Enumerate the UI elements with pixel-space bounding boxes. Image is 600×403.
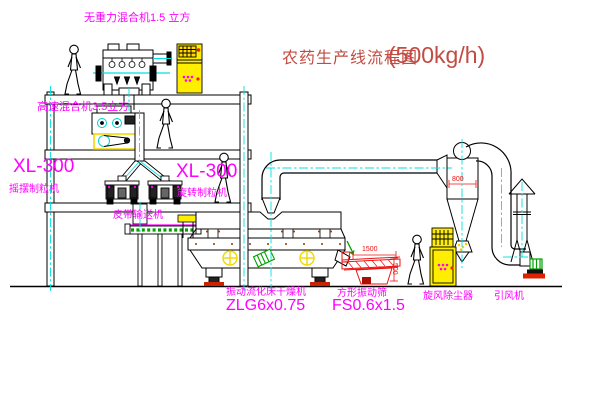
dryer-inlet	[178, 215, 198, 222]
dimension-cyclone-dia: 800	[452, 176, 464, 183]
label-sieve-model: FS0.6x1.5	[332, 298, 405, 314]
granulator-left	[105, 176, 139, 204]
label-dryer-model: ZLG6x0.75	[226, 298, 305, 314]
belt-conveyor	[125, 224, 201, 286]
label-high-speed-mixer: 高速混合机3.5立方	[37, 102, 129, 113]
person-icon	[65, 45, 81, 94]
fan-motor-icon	[530, 259, 542, 269]
induced-draft-fan	[520, 252, 545, 279]
label-granulator-right-name: 旋转制粒机	[177, 189, 227, 199]
label-cyclone: 旋风除尘器	[423, 292, 473, 302]
label-belt-conveyor: 皮带输送机	[113, 211, 163, 221]
label-granulator-right-model: XL-300	[176, 162, 237, 181]
dryer-feet	[204, 268, 330, 286]
flow-arrow-icon	[347, 241, 352, 251]
drawing-title-capacity: (500kg/h)	[388, 44, 485, 67]
label-fan: 引风机	[494, 292, 524, 302]
person-icon	[157, 99, 173, 148]
control-cabinet-top	[177, 44, 202, 93]
cad-drawing-canvas: 无重力混合机1.5 立方 农药生产线流程图 (500kg/h) 高速混合机3.5…	[0, 0, 600, 403]
person-icon	[408, 235, 424, 284]
control-cabinet-right	[430, 228, 456, 286]
label-granulator-left-name: 摇摆制粒机	[9, 185, 59, 195]
dimension-sieve-length: 1500	[362, 246, 378, 253]
hood-stubs	[206, 229, 332, 238]
label-granulator-left-model: XL-300	[13, 157, 74, 176]
indicator-light-icon	[197, 48, 201, 52]
exhaust-duct	[262, 160, 437, 200]
label-gravity-mixer: 无重力混合机1.5 立方	[84, 13, 190, 24]
indicator-light-icon	[196, 77, 199, 80]
dimension-sieve-height: 500	[391, 263, 398, 275]
indicator-light-icon	[450, 266, 453, 269]
